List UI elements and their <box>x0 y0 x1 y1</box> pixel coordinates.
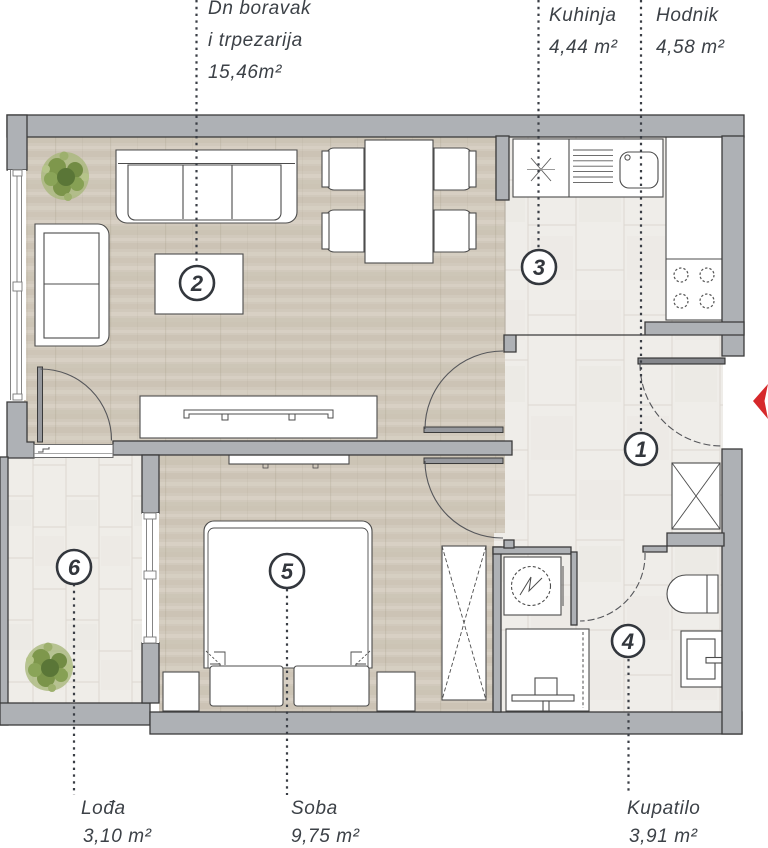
svg-text:3: 3 <box>533 255 545 280</box>
svg-text:Kupatilo: Kupatilo <box>627 798 700 819</box>
svg-text:Dn boravak: Dn boravak <box>208 0 312 19</box>
svg-text:4,58 m²: 4,58 m² <box>656 37 725 58</box>
svg-text:2: 2 <box>190 271 204 296</box>
svg-text:3,91 m²: 3,91 m² <box>629 826 698 847</box>
svg-text:Lođa: Lođa <box>81 798 126 819</box>
svg-text:Hodnik: Hodnik <box>656 5 720 26</box>
svg-text:Kuhinja: Kuhinja <box>549 5 617 26</box>
svg-text:15,46m²: 15,46m² <box>208 62 282 83</box>
svg-text:i trpezarija: i trpezarija <box>208 30 303 51</box>
svg-text:9,75 m²: 9,75 m² <box>291 826 360 847</box>
svg-text:5: 5 <box>281 559 294 584</box>
svg-text:3,10 m²: 3,10 m² <box>83 826 152 847</box>
svg-text:1: 1 <box>635 437 647 462</box>
svg-text:6: 6 <box>68 555 81 580</box>
svg-text:4: 4 <box>621 629 634 654</box>
svg-text:Soba: Soba <box>291 798 338 819</box>
svg-text:4,44 m²: 4,44 m² <box>549 37 618 58</box>
